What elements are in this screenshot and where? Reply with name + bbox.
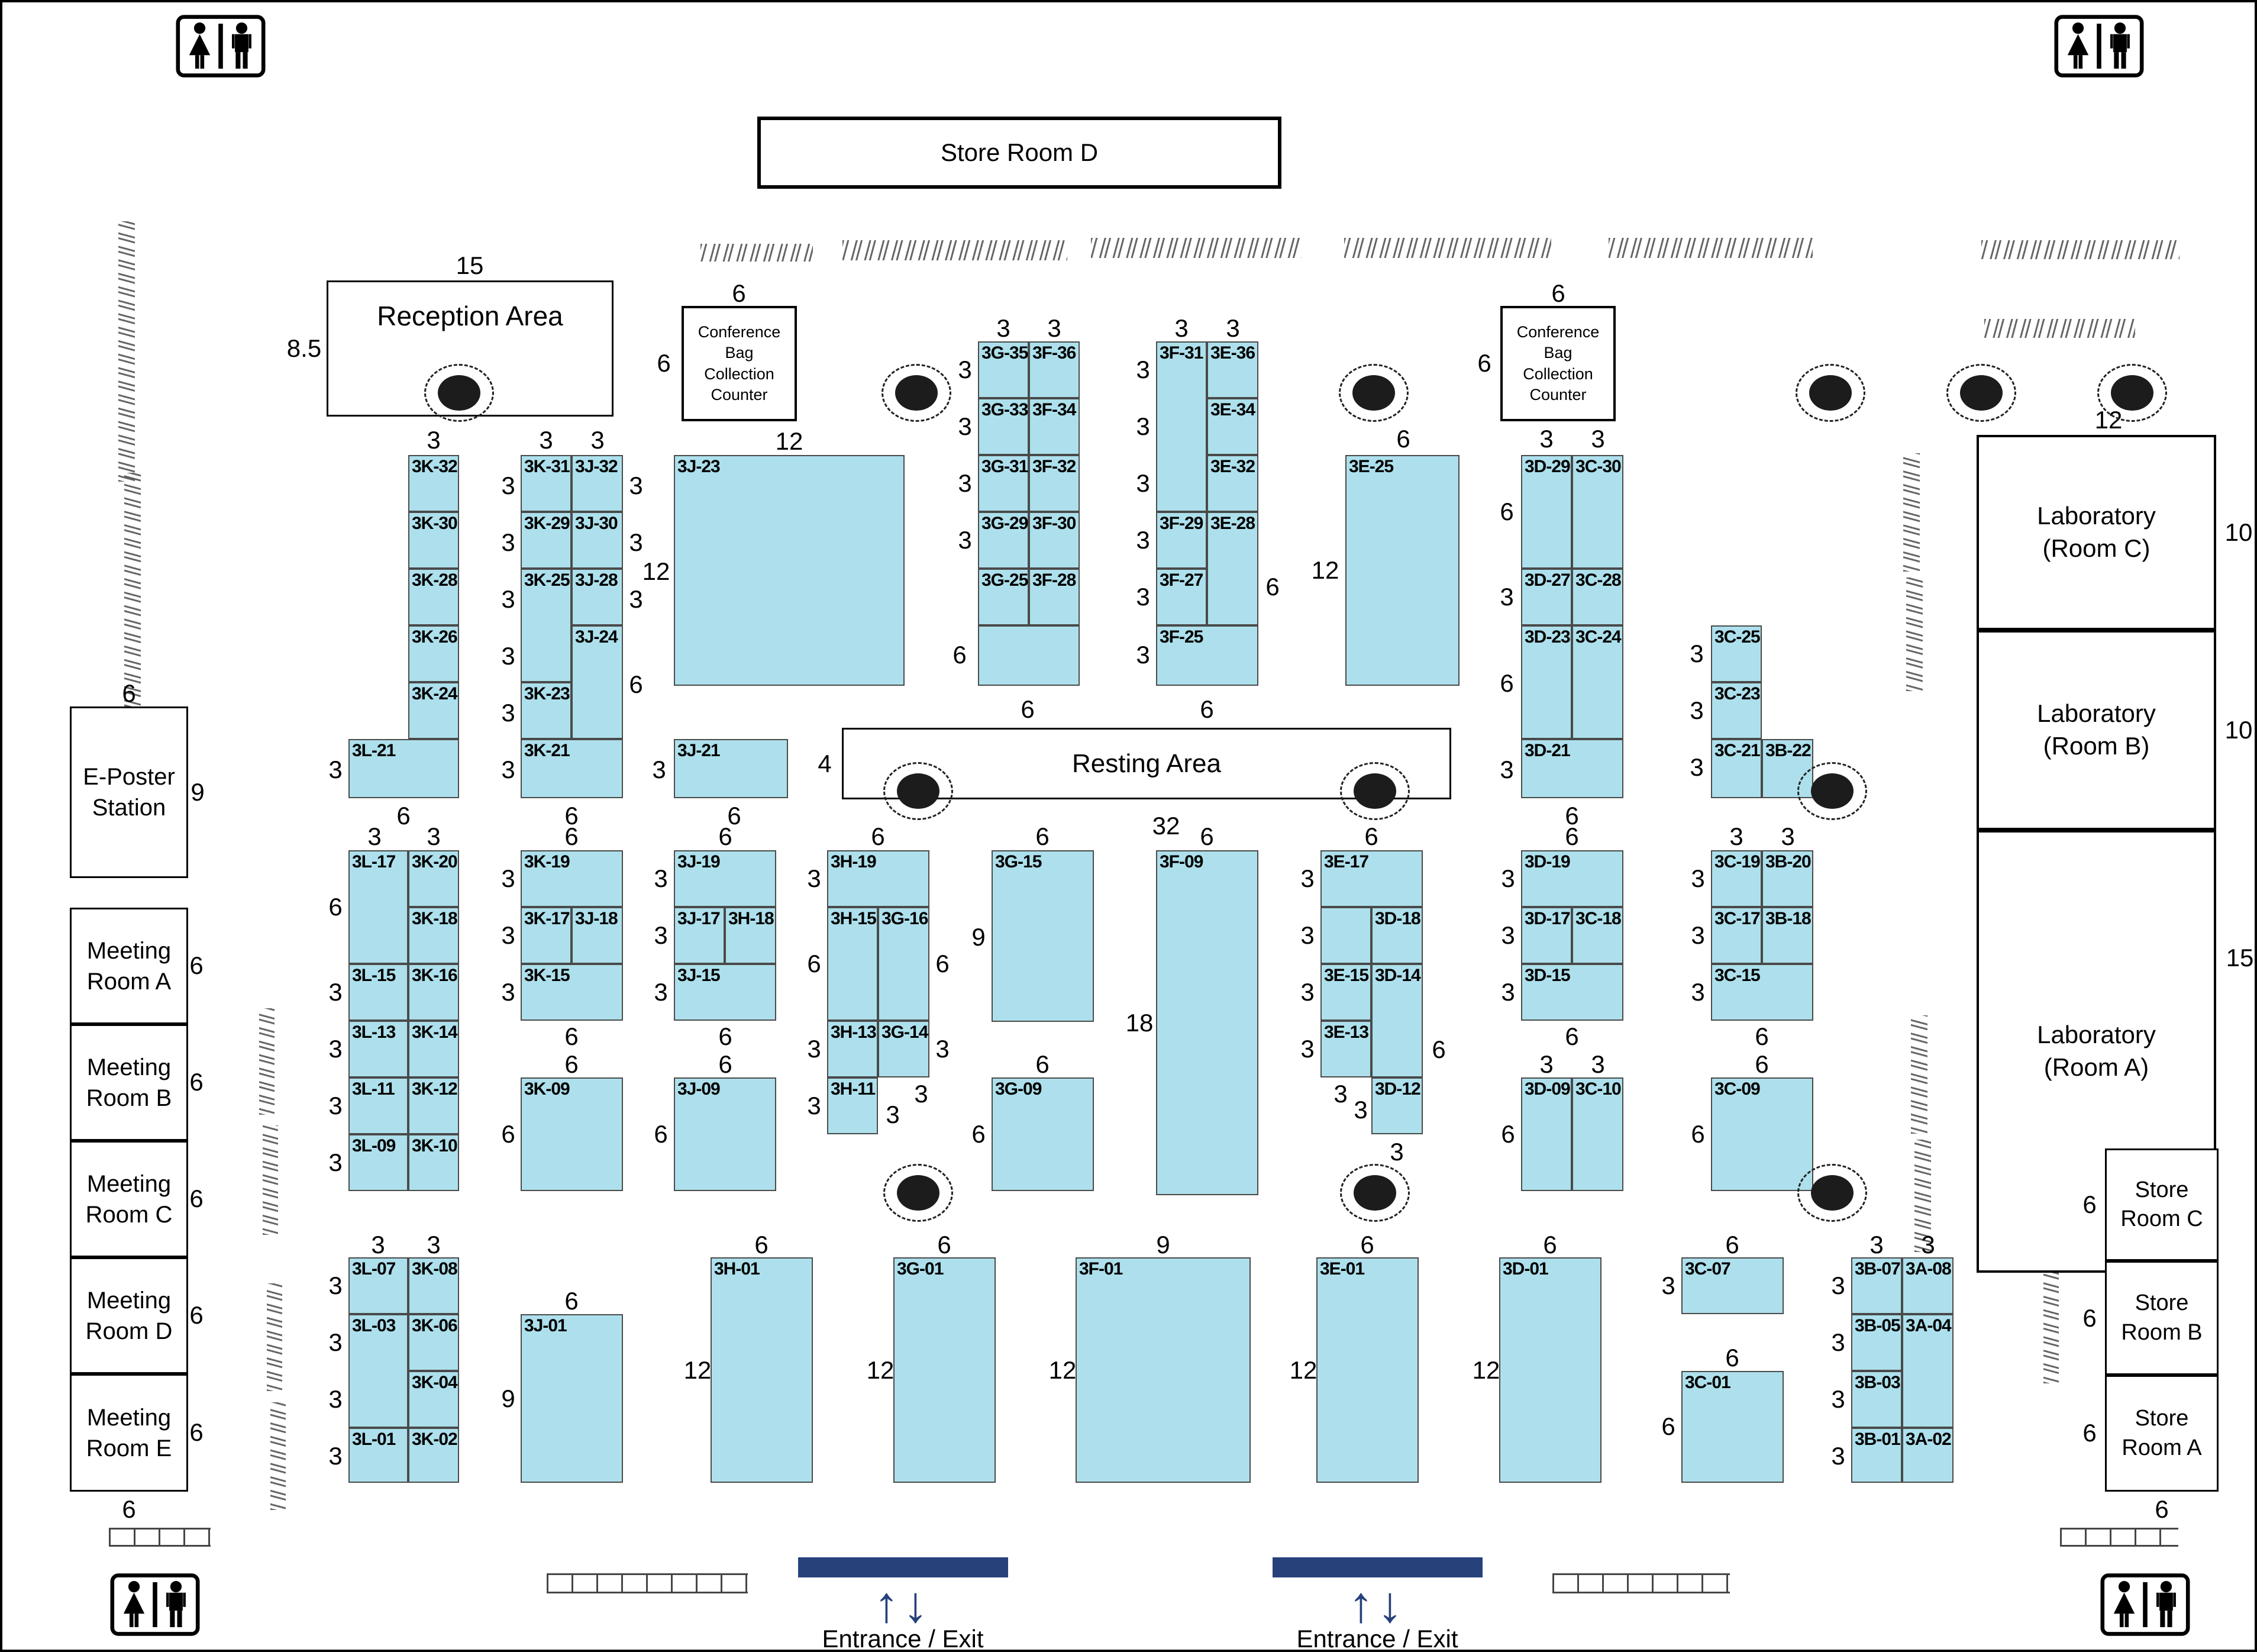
booth-3E-17: 3E-17 — [1320, 850, 1423, 907]
booth-label: 3K-23 — [524, 684, 570, 704]
dimension-label: 6 — [189, 1418, 203, 1447]
booth-3F-34: 3F-34 — [1029, 398, 1080, 455]
booth-3D-29: 3D-29 — [1521, 455, 1572, 569]
booth-3K-31: 3K-31 — [521, 455, 571, 512]
dimension-label: 6 — [937, 1231, 951, 1259]
dimension-label: 3 — [654, 978, 667, 1006]
dimension-label: 3 — [1501, 978, 1515, 1006]
booth-3F-01: 3F-01 — [1076, 1257, 1251, 1483]
booth-3J-09: 3J-09 — [674, 1077, 776, 1191]
booth-label: 3B-18 — [1765, 909, 1811, 929]
booth-label: 3C-21 — [1714, 741, 1760, 761]
dimension-label: 3 — [1300, 921, 1314, 950]
dimension-label: 3 — [1691, 978, 1704, 1006]
barrier-fence — [1552, 1573, 1730, 1593]
dimension-label: 3 — [1690, 640, 1703, 668]
booth-label: 3F-28 — [1032, 570, 1076, 591]
booth-3A-02: 3A-02 — [1902, 1428, 1954, 1483]
booth-label: 3K-08 — [412, 1259, 457, 1279]
booth-label: 3D-01 — [1503, 1259, 1548, 1279]
dimension-label: 3 — [1500, 583, 1513, 611]
dimension-label: 15 — [2226, 944, 2254, 972]
dimension-label: 3 — [328, 1328, 342, 1357]
booth-label: 3K-10 — [412, 1136, 457, 1156]
room-label: Meeting Room E — [86, 1402, 172, 1464]
barrier-fence — [270, 1402, 286, 1510]
booth-label: 3F-30 — [1032, 514, 1076, 534]
dimension-label: 3 — [1831, 1442, 1845, 1470]
barrier-fence — [547, 1573, 748, 1593]
booth-label: 3L-07 — [352, 1259, 395, 1279]
booth-label: 3D-21 — [1525, 741, 1570, 761]
booth-label: 3J-32 — [575, 457, 618, 477]
dimension-label: 6 — [1755, 1022, 1768, 1051]
barrier-fence — [1906, 577, 1923, 691]
room-label: Meeting Room D — [86, 1285, 173, 1347]
booth-3J-32: 3J-32 — [571, 455, 623, 512]
pillar-core — [897, 773, 939, 809]
dimension-label: 3 — [371, 1231, 385, 1259]
booth-3F-36: 3F-36 — [1029, 341, 1080, 398]
dimension-label: 12 — [1312, 556, 1339, 585]
room-label: Store Room C — [2120, 1176, 2203, 1234]
booth-3H-01: 3H-01 — [711, 1257, 813, 1483]
booth-label: 3F-25 — [1160, 627, 1203, 647]
booth-label: 3K-24 — [412, 684, 457, 704]
booth-3K-23: 3K-23 — [521, 682, 571, 739]
barrier-fence — [842, 240, 1067, 260]
dimension-label: 3 — [1501, 864, 1515, 893]
booth-label: 3K-28 — [412, 570, 457, 591]
booth-3H-15: 3H-15 — [827, 907, 878, 1021]
dimension-label: 3 — [1300, 864, 1314, 893]
booth-3E-32: 3E-32 — [1207, 455, 1258, 512]
booth-label: 3H-13 — [831, 1022, 876, 1043]
booth-label: 3A-04 — [1906, 1316, 1951, 1336]
booth-3D-01: 3D-01 — [1499, 1257, 1601, 1483]
booth-label: 3D-14 — [1375, 966, 1420, 986]
dimension-label: 12 — [867, 1356, 895, 1385]
booth-label: 3J-24 — [575, 627, 618, 647]
restroom-icon — [2054, 14, 2144, 78]
booth-3J-17: 3J-17 — [674, 907, 725, 964]
booth-3G-25: 3G-25 — [978, 569, 1029, 625]
booth-3F-28: 3F-28 — [1029, 569, 1080, 625]
booth-3B-07: 3B-07 — [1851, 1257, 1902, 1314]
room-meeting-c: Meeting Room C — [70, 1141, 188, 1257]
dimension-label: 6 — [2155, 1495, 2168, 1524]
booth-3K-12: 3K-12 — [408, 1077, 459, 1134]
pillar-core — [1960, 375, 2003, 411]
room-store-c: Store Room C — [2105, 1148, 2219, 1261]
dimension-label: 3 — [1300, 1035, 1314, 1063]
booth-label: 3K-04 — [412, 1373, 457, 1393]
dimension-label: 6 — [1360, 1231, 1374, 1259]
booth-3G-29: 3G-29 — [978, 512, 1029, 569]
booth-label: 3J-15 — [677, 966, 720, 986]
dimension-label: 3 — [590, 426, 604, 454]
booth-3G-35: 3G-35 — [978, 341, 1029, 398]
dimension-label: 6 — [1691, 1120, 1704, 1148]
dimension-label: 6 — [1477, 349, 1491, 377]
dimension-label: 3 — [328, 1385, 342, 1414]
dimension-label: 8.5 — [287, 334, 321, 363]
booth-label: 3K-12 — [412, 1079, 457, 1099]
booth-label: 3E-28 — [1210, 514, 1255, 534]
booth-label: 3C-18 — [1575, 909, 1621, 929]
booth-3C-25: 3C-25 — [1711, 625, 1762, 682]
booth-label: 3J-18 — [575, 909, 618, 929]
dimension-label: 3 — [1831, 1272, 1845, 1300]
dimension-label: 6 — [328, 893, 342, 921]
room-label: Resting Area — [1072, 747, 1221, 780]
booth-3B-01: 3B-01 — [1851, 1428, 1902, 1483]
dimension-label: 6 — [654, 1120, 667, 1148]
booth-3J-28: 3J-28 — [571, 569, 623, 625]
booth-label: 3F-09 — [1160, 852, 1203, 872]
dimension-label: 3 — [501, 978, 515, 1006]
booth-3H-11: 3H-11 — [827, 1077, 878, 1134]
booth-label: 3J-19 — [677, 852, 720, 872]
booth-label: 3L-13 — [352, 1022, 395, 1043]
booth-label: 3C-09 — [1714, 1079, 1760, 1099]
room-label: Store Room D — [941, 137, 1098, 169]
dimension-label: 3 — [1047, 314, 1061, 343]
booth-3K-09: 3K-09 — [521, 1077, 623, 1191]
dimension-label: 3 — [807, 1092, 821, 1120]
booth-3L-21: 3L-21 — [348, 739, 459, 798]
dimension-label: 6 — [952, 641, 966, 669]
booth-label: 3K-18 — [412, 909, 457, 929]
booth-label: 3D-17 — [1525, 909, 1570, 929]
dimension-label: 6 — [122, 679, 135, 708]
barrier-fence — [267, 1283, 282, 1391]
exhibition-floor-plan: Store Room D Reception Area Conference B… — [0, 0, 2257, 1652]
dimension-label: 3 — [1661, 1272, 1675, 1300]
dimension-label: 6 — [935, 950, 949, 978]
booth-label: 3H-01 — [714, 1259, 760, 1279]
booth-3K-16: 3K-16 — [408, 964, 459, 1021]
booth-label: 3J-23 — [677, 457, 720, 477]
restroom-icon — [176, 14, 266, 78]
booth-3H-18: 3H-18 — [725, 907, 776, 964]
booth-label: 3E-01 — [1320, 1259, 1364, 1279]
room-conference-bag-counter-2: Conference Bag Collection Counter — [1500, 306, 1616, 421]
dimension-label: 6 — [1200, 822, 1213, 851]
restroom-icon — [110, 1572, 200, 1638]
booth-3G-33: 3G-33 — [978, 398, 1029, 455]
booth-3L-15: 3L-15 — [348, 964, 408, 1021]
booth-label: 3L-21 — [352, 741, 395, 761]
dimension-label: 6 — [1021, 695, 1034, 724]
dimension-label: 3 — [629, 528, 642, 557]
booth-label: 3E-25 — [1349, 457, 1393, 477]
dimension-label: 6 — [1500, 498, 1513, 526]
dimension-label: 3 — [1831, 1385, 1845, 1414]
dimension-label: 6 — [189, 1301, 203, 1330]
booth-3L-17: 3L-17 — [348, 850, 408, 964]
booth-3E-15: 3E-15 — [1320, 964, 1371, 1021]
room-label: Laboratory (Room C) — [2037, 500, 2156, 564]
booth-label: 3G-25 — [981, 570, 1028, 591]
booth-3A-08: 3A-08 — [1902, 1257, 1954, 1314]
booth-label: 3K-15 — [524, 966, 570, 986]
booth-label: 3K-21 — [524, 741, 570, 761]
booth-label: 3E-36 — [1210, 343, 1255, 363]
booth-label: 3K-29 — [524, 514, 570, 534]
pillar-core — [1354, 1175, 1396, 1211]
pillar — [1339, 364, 1409, 422]
booth-label: 3F-34 — [1032, 400, 1076, 420]
barrier-fence — [259, 1008, 275, 1115]
dimension-label: 3 — [1539, 425, 1553, 453]
pillar-core — [1811, 1175, 1854, 1211]
booth-label: 3F-36 — [1032, 343, 1076, 363]
booth-label: 3E-17 — [1324, 852, 1368, 872]
booth-label: 3J-21 — [677, 741, 720, 761]
booth-label: 3K-31 — [524, 457, 570, 477]
dimension-label: 6 — [718, 822, 732, 851]
dimension-label: 3 — [328, 1148, 342, 1177]
room-meeting-b: Meeting Room B — [70, 1024, 188, 1141]
room-label: Conference Bag Collection Counter — [684, 322, 795, 405]
entrance-arrows: ↑↓ — [844, 1579, 962, 1630]
booth-3K-18: 3K-18 — [408, 907, 459, 964]
dimension-label: 3 — [935, 1035, 949, 1063]
booth-label: 3C-19 — [1714, 852, 1760, 872]
dimension-label: 3 — [958, 356, 971, 384]
booth-3C-10: 3C-10 — [1572, 1077, 1623, 1191]
booth-3C-24: 3C-24 — [1572, 625, 1623, 739]
dimension-label: 3 — [501, 472, 515, 500]
dimension-label: 9 — [971, 923, 985, 951]
booth-label: 3D-29 — [1525, 457, 1570, 477]
booth-3G-09: 3G-09 — [992, 1077, 1094, 1191]
booth-3C-30: 3C-30 — [1572, 455, 1623, 569]
booth-3K-26: 3K-26 — [408, 625, 459, 682]
dimension-label: 15 — [456, 251, 484, 280]
booth-label: 3F-01 — [1079, 1259, 1122, 1279]
booth-3K-32: 3K-32 — [408, 455, 459, 512]
dimension-label: 6 — [1565, 822, 1578, 851]
booth-3K-06: 3K-06 — [408, 1314, 459, 1371]
booth-label: 3D-23 — [1525, 627, 1570, 647]
booth-label: 3G-29 — [981, 514, 1028, 534]
barrier-fence — [1911, 1015, 1927, 1134]
booth-label: 3H-15 — [831, 909, 876, 929]
dimension-label: 3 — [807, 1035, 821, 1063]
booth-3C-15: 3C-15 — [1711, 964, 1813, 1021]
pillar-core — [2111, 375, 2153, 411]
room-meeting-e: Meeting Room E — [70, 1374, 188, 1492]
booth-3D-18: 3D-18 — [1371, 907, 1423, 964]
booth-label: 3K-30 — [412, 514, 457, 534]
booth-3D-15: 3D-15 — [1521, 964, 1623, 1021]
booth-3C-23: 3C-23 — [1711, 682, 1762, 739]
booth-3B-18: 3B-18 — [1762, 907, 1813, 964]
dimension-label: 12 — [1049, 1356, 1077, 1385]
booth-3C-17: 3C-17 — [1711, 907, 1762, 964]
room-label: Meeting Room A — [87, 935, 171, 997]
dimension-label: 3 — [1869, 1231, 1883, 1259]
dimension-label: 3 — [367, 822, 381, 851]
booth-3C-18: 3C-18 — [1572, 907, 1623, 964]
booth-3K-24: 3K-24 — [408, 682, 459, 739]
dimension-label: 3 — [914, 1080, 928, 1108]
booth-label: 3L-09 — [352, 1136, 395, 1156]
dimension-label: 6 — [1661, 1412, 1675, 1441]
dimension-label: 9 — [190, 778, 204, 806]
dimension-label: 3 — [328, 1035, 342, 1063]
room-label: Meeting Room C — [86, 1169, 173, 1230]
dimension-label: 6 — [564, 1287, 578, 1315]
booth-3K-19: 3K-19 — [521, 850, 623, 907]
dimension-label: 3 — [328, 1092, 342, 1120]
booth-label: 3H-11 — [831, 1079, 875, 1099]
barrier-fence — [1344, 238, 1551, 258]
dimension-label: 6 — [1565, 1022, 1578, 1051]
dimension-label: 6 — [871, 822, 884, 851]
dimension-label: 3 — [539, 426, 553, 454]
dimension-label: 6 — [754, 1231, 768, 1259]
dimension-label: 3 — [501, 528, 515, 557]
booth-label: 3J-28 — [575, 570, 618, 591]
dimension-label: 3 — [1501, 921, 1515, 950]
room-meeting-d: Meeting Room D — [70, 1257, 188, 1374]
booth-3C-01: 3C-01 — [1681, 1371, 1784, 1483]
booth-3F-27: 3F-27 — [1156, 569, 1207, 625]
booth-3E-34: 3E-34 — [1207, 398, 1258, 455]
dimension-label: 12 — [684, 1356, 712, 1385]
dimension-label: 6 — [189, 951, 203, 980]
booth-3C-28: 3C-28 — [1572, 569, 1623, 625]
booth-3E-13: 3E-13 — [1320, 1021, 1371, 1077]
dimension-label: 3 — [958, 526, 971, 554]
dimension-label: 6 — [1200, 695, 1213, 724]
dimension-label: 3 — [427, 822, 440, 851]
barrier-fence — [118, 221, 135, 482]
pillar — [1796, 364, 1865, 422]
barrier-fence — [1903, 453, 1920, 572]
booth-cell — [1320, 907, 1371, 964]
pillar-core — [1811, 773, 1854, 809]
dimension-label: 3 — [328, 1272, 342, 1300]
pillar-core — [1352, 375, 1395, 411]
pillar — [1797, 762, 1867, 820]
pillar — [1946, 364, 2016, 422]
booth-label: 3K-02 — [412, 1430, 457, 1450]
dimension-label: 3 — [1354, 1096, 1367, 1124]
dimension-label: 3 — [501, 585, 515, 614]
room-e-poster-station: E-Poster Station — [70, 706, 188, 878]
booth-3F-09: 3F-09 — [1156, 850, 1258, 1195]
dimension-label: 3 — [652, 756, 666, 784]
booth-3G-14: 3G-14 — [878, 1021, 929, 1077]
booth-label: 3D-18 — [1375, 909, 1420, 929]
barrier-fence — [109, 1528, 211, 1547]
room-label: Store Room B — [2121, 1289, 2202, 1347]
room-label: Meeting Room B — [86, 1052, 172, 1114]
booth-label: 3F-27 — [1160, 570, 1203, 591]
dimension-label: 6 — [732, 279, 745, 308]
dimension-label: 6 — [1035, 1050, 1049, 1079]
booth-3K-08: 3K-08 — [408, 1257, 459, 1314]
room-label: Laboratory (Room A) — [2037, 1019, 2156, 1083]
dimension-label: 6 — [1725, 1231, 1739, 1259]
booth-3J-19: 3J-19 — [674, 850, 776, 907]
dimension-label: 3 — [328, 978, 342, 1006]
dimension-label: 3 — [629, 472, 642, 500]
restroom-icon — [2100, 1572, 2190, 1638]
room-lab-c: Laboratory (Room C) — [1977, 435, 2216, 630]
room-label: Reception Area — [377, 299, 563, 334]
dimension-label: 3 — [996, 314, 1010, 343]
dimension-label: 6 — [2082, 1190, 2096, 1219]
pillar — [1797, 1164, 1867, 1222]
booth-label: 3K-17 — [524, 909, 570, 929]
dimension-label: 6 — [629, 670, 642, 699]
pillar-core — [438, 375, 480, 411]
barrier-fence — [2043, 1264, 2059, 1383]
booth-label: 3G-31 — [981, 457, 1028, 477]
dimension-label: 6 — [501, 1120, 515, 1148]
dimension-label: 3 — [1136, 641, 1150, 669]
entrance-bar — [1273, 1557, 1483, 1577]
booth-label: 3K-32 — [412, 457, 457, 477]
dimension-label: 3 — [501, 699, 515, 727]
booth-label: 3F-29 — [1160, 514, 1203, 534]
booth-3C-09: 3C-09 — [1711, 1077, 1813, 1191]
booth-3D-27: 3D-27 — [1521, 569, 1572, 625]
booth-3D-23: 3D-23 — [1521, 625, 1572, 739]
dimension-label: 6 — [1396, 425, 1410, 453]
booth-3K-29: 3K-29 — [521, 512, 571, 569]
dimension-label: 6 — [189, 1185, 203, 1213]
dimension-label: 6 — [1543, 1231, 1557, 1259]
pillar-core — [1354, 773, 1396, 809]
dimension-label: 6 — [2082, 1304, 2096, 1332]
booth-label: 3G-35 — [981, 343, 1028, 363]
dimension-label: 3 — [958, 469, 971, 498]
booth-cell — [978, 625, 1080, 686]
dimension-label: 6 — [122, 1495, 135, 1524]
booth-label: 3K-26 — [412, 627, 457, 647]
booth-label: 3K-16 — [412, 966, 457, 986]
dimension-label: 3 — [1691, 864, 1704, 893]
dimension-label: 3 — [1831, 1328, 1845, 1357]
booth-label: 3C-28 — [1575, 570, 1621, 591]
booth-3C-19: 3C-19 — [1711, 850, 1762, 907]
booth-label: 3H-18 — [728, 909, 774, 929]
dimension-label: 3 — [427, 1231, 440, 1259]
booth-label: 3K-09 — [524, 1079, 570, 1099]
dimension-label: 12 — [776, 427, 803, 456]
room-lab-b: Laboratory (Room B) — [1977, 630, 2216, 830]
booth-3E-36: 3E-36 — [1207, 341, 1258, 398]
dimension-label: 6 — [1725, 1344, 1739, 1372]
booth-3F-30: 3F-30 — [1029, 512, 1080, 569]
booth-3K-25: 3K-25 — [521, 569, 571, 682]
booth-3D-12: 3D-12 — [1371, 1077, 1423, 1134]
booth-3K-02: 3K-02 — [408, 1428, 459, 1483]
booth-label: 3J-09 — [677, 1079, 720, 1099]
dimension-label: 3 — [807, 864, 821, 893]
booth-3K-30: 3K-30 — [408, 512, 459, 569]
dimension-label: 3 — [1591, 425, 1604, 453]
pillar — [424, 364, 494, 422]
dimension-label: 6 — [564, 1022, 578, 1051]
booth-label: 3D-12 — [1375, 1079, 1420, 1099]
